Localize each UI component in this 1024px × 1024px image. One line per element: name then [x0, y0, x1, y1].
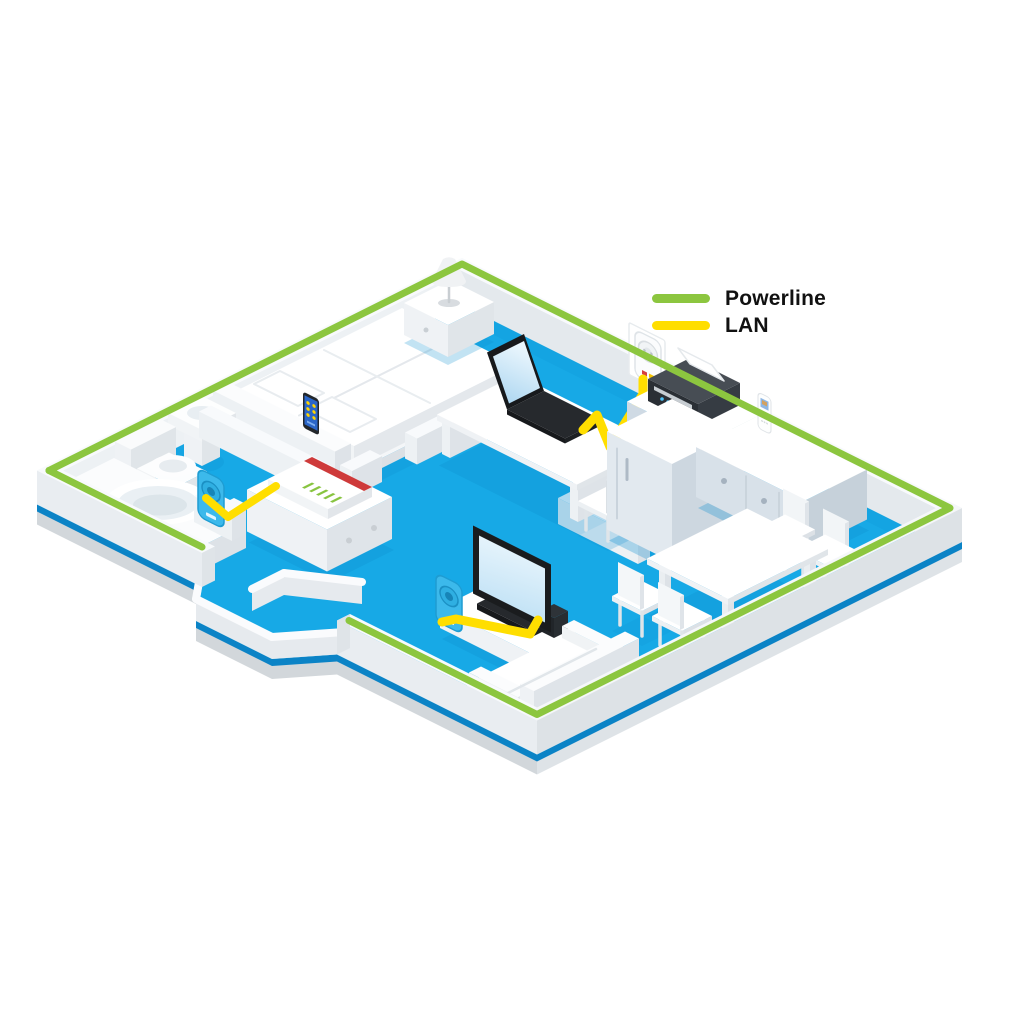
legend-item-powerline: Powerline — [652, 288, 826, 308]
powerline-color-swatch — [652, 294, 710, 303]
legend-label-lan: LAN — [725, 315, 769, 336]
isometric-home-network-illustration: Powerline LAN — [0, 0, 1024, 1024]
legend: Powerline LAN — [652, 288, 826, 335]
floorplan-canvas — [0, 0, 1024, 1024]
lan-color-swatch — [652, 321, 710, 330]
legend-label-powerline: Powerline — [725, 288, 826, 309]
legend-item-lan: LAN — [652, 315, 826, 335]
